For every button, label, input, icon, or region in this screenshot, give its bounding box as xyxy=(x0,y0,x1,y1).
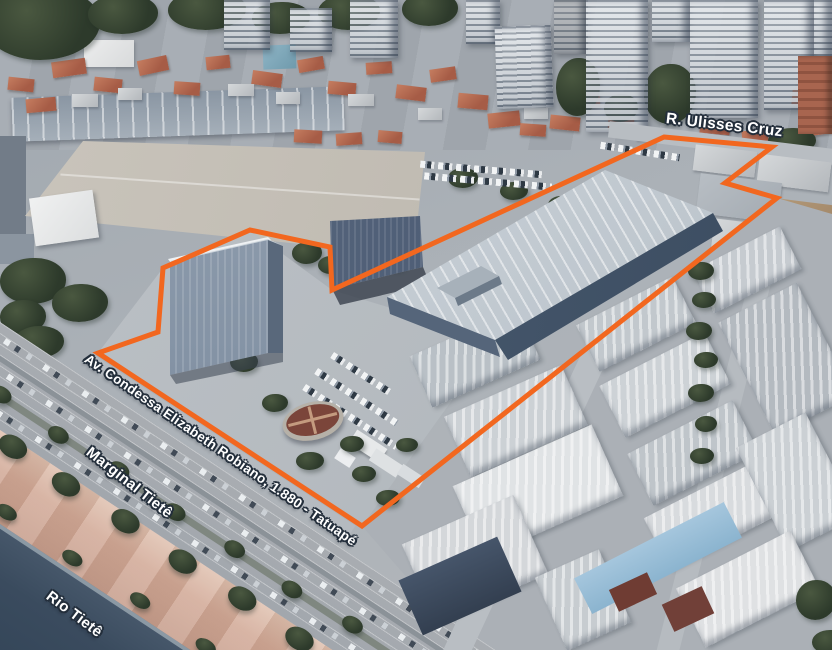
tree xyxy=(796,580,832,620)
tree xyxy=(292,242,322,264)
house-roof xyxy=(118,88,142,100)
house-roof xyxy=(25,97,56,114)
bank-bush xyxy=(0,500,20,524)
tree xyxy=(52,284,108,322)
house-roof xyxy=(366,61,393,75)
house-roof xyxy=(520,123,547,137)
highrise-tower xyxy=(814,0,832,62)
house-roof xyxy=(457,93,488,111)
dark-building-strip xyxy=(0,136,26,236)
bank-bush xyxy=(127,589,153,613)
highrise-tower xyxy=(495,25,554,109)
house-roof xyxy=(524,108,548,119)
highrise-tower xyxy=(224,0,270,50)
white-shed-roof xyxy=(29,190,99,246)
brick-apartment-block xyxy=(798,56,832,134)
house-roof xyxy=(7,77,34,93)
house-roof xyxy=(174,81,201,96)
highrise-tower xyxy=(554,0,588,54)
highrise-tower xyxy=(586,0,648,132)
bank-bush xyxy=(193,635,219,650)
house-roof xyxy=(336,132,363,146)
house-roof xyxy=(205,55,230,70)
house-roof xyxy=(228,84,254,96)
highrise-tower xyxy=(652,0,690,42)
highrise-tower xyxy=(690,0,758,118)
small-white-building xyxy=(397,464,425,488)
highrise-tower xyxy=(350,0,398,58)
house-roof xyxy=(418,108,442,120)
house-roof xyxy=(378,130,403,144)
house-roof xyxy=(348,94,374,106)
house-roof xyxy=(549,114,580,131)
aerial-map-view[interactable]: R. Ulisses Cruz Av. Condessa Elizabeth R… xyxy=(0,0,832,650)
house-roof xyxy=(72,94,98,107)
white-building-roof xyxy=(84,40,134,67)
house-roof xyxy=(294,129,323,143)
house-roof xyxy=(276,92,300,104)
highrise-tower xyxy=(290,8,332,52)
